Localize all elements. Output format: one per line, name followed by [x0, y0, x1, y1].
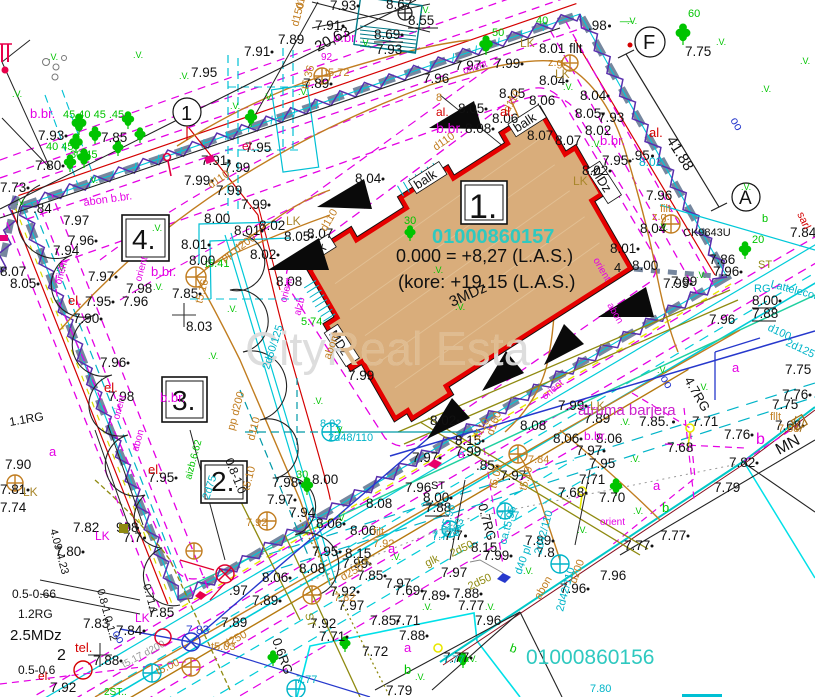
svg-text:7.77: 7.77 — [660, 528, 686, 543]
svg-text:orient: orient — [600, 517, 625, 528]
svg-text:7.75: 7.75 — [785, 362, 811, 377]
svg-text:a: a — [404, 640, 412, 655]
svg-text:8.02: 8.02 — [320, 418, 341, 430]
svg-text:8.55: 8.55 — [408, 13, 434, 28]
svg-text:.V.: .V. — [422, 602, 432, 612]
svg-text:8.04: 8.04 — [640, 221, 667, 236]
svg-text:CK9843U: CK9843U — [683, 227, 731, 239]
svg-text:7.75: 7.75 — [685, 44, 711, 59]
svg-text:b: b — [662, 500, 669, 515]
svg-text:1.2RG: 1.2RG — [18, 607, 53, 621]
svg-text:.V.: .V. — [485, 602, 495, 612]
svg-text:el.: el. — [68, 293, 82, 308]
svg-text:t5.03: t5.03 — [211, 641, 235, 653]
svg-text:8.08: 8.08 — [299, 561, 325, 576]
svg-text:.V.: .V. — [152, 223, 162, 233]
svg-text:7.95: 7.95 — [191, 65, 217, 80]
svg-text:F: F — [643, 32, 655, 54]
svg-text:7.99: 7.99 — [348, 368, 374, 383]
svg-text:8.01: 8.01 — [610, 241, 636, 256]
svg-text:a: a — [49, 444, 57, 459]
svg-text:40: 40 — [536, 15, 548, 27]
svg-text:8.06: 8.06 — [529, 93, 555, 108]
svg-text:al.: al. — [436, 105, 449, 119]
svg-text:7.89: 7.89 — [420, 588, 446, 603]
svg-text:tel.: tel. — [75, 640, 92, 655]
svg-text:7.82: 7.82 — [729, 455, 755, 470]
svg-text:LK: LK — [573, 174, 588, 188]
svg-text:7.94: 7.94 — [289, 505, 316, 520]
svg-text:7.82: 7.82 — [334, 592, 355, 604]
svg-text:a: a — [732, 360, 740, 375]
svg-text:7.79: 7.79 — [714, 480, 740, 495]
svg-text:b.br.: b.br. — [30, 106, 55, 121]
svg-text:7.79: 7.79 — [386, 683, 412, 697]
svg-text:.V.: .V. — [313, 396, 323, 406]
svg-text:7.84: 7.84 — [528, 454, 549, 466]
svg-text:.84: .84 — [33, 201, 52, 216]
svg-text:.V.: .V. — [179, 71, 189, 81]
svg-text:.V.: .V. — [633, 506, 643, 516]
svg-text:7.93: 7.93 — [376, 42, 402, 57]
svg-text:8.08: 8.08 — [465, 121, 491, 136]
svg-text:8.02: 8.02 — [250, 247, 276, 262]
svg-text:t5.72: t5.72 — [325, 67, 349, 79]
svg-text:45 40 45 .45: 45 40 45 .45 — [63, 109, 124, 121]
svg-text:7.96: 7.96 — [423, 71, 449, 86]
svg-text:7.90: 7.90 — [73, 311, 99, 326]
svg-text:2.5MDz: 2.5MDz — [10, 627, 62, 644]
svg-text:2d48/110: 2d48/110 — [328, 432, 373, 444]
svg-text:.V.: .V. — [741, 182, 751, 192]
svg-text:b.br.: b.br. — [160, 390, 185, 405]
svg-text:8.00: 8.00 — [204, 211, 230, 226]
svg-text:1: 1 — [181, 103, 192, 125]
svg-text:4: 4 — [614, 260, 621, 275]
svg-text:7.96: 7.96 — [600, 568, 626, 583]
svg-text:01000860157: 01000860157 — [432, 226, 554, 248]
svg-text:01000860156: 01000860156 — [526, 646, 654, 669]
svg-text:8.06: 8.06 — [262, 570, 288, 585]
svg-text:.V.: .V. — [16, 197, 26, 207]
svg-text:7.74: 7.74 — [0, 500, 27, 515]
svg-text:fllt: fllt — [770, 411, 781, 423]
svg-text:60: 60 — [688, 8, 700, 20]
svg-text:ST: ST — [431, 480, 445, 492]
svg-text:8.07: 8.07 — [555, 133, 581, 148]
svg-text:LK: LK — [95, 529, 110, 543]
svg-text:7.89: 7.89 — [278, 32, 304, 47]
svg-text:7.71: 7.71 — [319, 629, 345, 644]
svg-text:.V.: .V. — [227, 304, 237, 314]
svg-text:8.08: 8.08 — [520, 418, 546, 433]
svg-text:filt: filt — [373, 526, 384, 538]
svg-text:0.5-0.6: 0.5-0.6 — [18, 663, 56, 677]
svg-text:.V.: .V. — [716, 37, 726, 47]
svg-text:.V.: .V. — [455, 302, 465, 312]
svg-text:7.71: 7.71 — [692, 414, 718, 429]
svg-text:7.77: 7.77 — [624, 538, 650, 553]
svg-text:.V.: .V. — [360, 38, 370, 48]
svg-text:.V.: .V. — [133, 50, 143, 60]
svg-text:al.: al. — [500, 104, 514, 119]
svg-text:7.85: 7.85 — [101, 130, 127, 145]
svg-text:8.08: 8.08 — [366, 496, 392, 511]
svg-text:7.93: 7.93 — [598, 110, 624, 125]
svg-text:8.02: 8.02 — [639, 155, 663, 169]
svg-text:el.: el. — [242, 139, 255, 153]
svg-text:7.77: 7.77 — [296, 674, 317, 686]
svg-text:7.85: 7.85 — [370, 613, 396, 628]
svg-text:.V.: .V. — [230, 101, 240, 111]
svg-text:7.75: 7.75 — [772, 397, 798, 412]
svg-text:8.00: 8.00 — [312, 472, 338, 487]
svg-text:2ST..: 2ST.. — [104, 687, 127, 697]
svg-text:7.95: 7.95 — [85, 294, 111, 309]
svg-text:7.97: 7.97 — [63, 213, 89, 228]
svg-text:7.80: 7.80 — [590, 683, 611, 695]
svg-text:8.06: 8.06 — [316, 516, 342, 531]
svg-text:7.93: 7.93 — [330, 0, 356, 13]
svg-text:7.96: 7.96 — [646, 188, 672, 203]
svg-text:7.77: 7.77 — [498, 510, 519, 522]
svg-text:7.99: 7.99 — [494, 56, 520, 71]
svg-text:8.00: 8.00 — [189, 253, 215, 268]
svg-text:8.02: 8.02 — [430, 413, 456, 428]
svg-text:7.68: 7.68 — [558, 485, 584, 500]
svg-text:.V.: .V. — [627, 16, 637, 26]
svg-text:b.br.: b.br. — [436, 120, 463, 136]
svg-text:7.76: 7.76 — [724, 427, 750, 442]
svg-text:a: a — [388, 541, 396, 556]
svg-text:7.68: 7.68 — [667, 440, 693, 455]
svg-text:LK: LK — [520, 36, 535, 50]
svg-text:LK: LK — [590, 399, 605, 413]
svg-text:1.: 1. — [469, 188, 497, 226]
svg-text:7.83: 7.83 — [186, 623, 210, 637]
svg-text:.V.: .V. — [153, 282, 163, 292]
svg-text:7.96: 7.96 — [709, 312, 735, 327]
svg-text:7.99: 7.99 — [671, 274, 697, 289]
svg-text:20: 20 — [752, 234, 764, 246]
svg-text:2: 2 — [57, 647, 66, 664]
svg-text:7.91: 7.91 — [244, 44, 270, 59]
svg-text:30 45: 30 45 — [70, 149, 98, 161]
svg-text:.V.: .V. — [761, 84, 771, 94]
svg-text:.98: .98 — [588, 18, 607, 33]
svg-text:LK: LK — [357, 554, 372, 568]
svg-text:b: b — [404, 662, 411, 677]
svg-text:7.89: 7.89 — [252, 593, 278, 608]
svg-text:7.77: 7.77 — [443, 654, 464, 666]
svg-text:.97: .97 — [229, 583, 248, 598]
svg-text:7.98: 7.98 — [272, 475, 298, 490]
svg-text:7.95: 7.95 — [602, 153, 628, 168]
svg-text:el.: el. — [104, 380, 118, 395]
svg-text:8.04: 8.04 — [355, 171, 382, 186]
svg-text:8.01 fllt: 8.01 fllt — [539, 41, 583, 56]
svg-text:LK: LK — [23, 485, 38, 499]
svg-text:50: 50 — [492, 27, 504, 39]
svg-text:ST: ST — [758, 259, 772, 271]
svg-text:a: a — [653, 478, 661, 493]
svg-text:7.88: 7.88 — [399, 628, 425, 643]
svg-text:8.67: 8.67 — [386, 0, 412, 12]
svg-text:7.70: 7.70 — [599, 490, 625, 505]
svg-text:7.99: 7.99 — [241, 197, 267, 212]
svg-text:b.br.: b.br. — [151, 264, 176, 279]
svg-text:.V.: .V. — [12, 89, 22, 99]
svg-text:8.03: 8.03 — [186, 319, 212, 334]
svg-text:.V.: .V. — [696, 270, 706, 280]
svg-text:b: b — [762, 213, 768, 225]
svg-text:filt: filt — [660, 203, 671, 215]
svg-text:30: 30 — [404, 215, 416, 227]
svg-text:7.90: 7.90 — [5, 457, 31, 472]
svg-text:7.96: 7.96 — [122, 294, 148, 309]
svg-text:7.97: 7.97 — [88, 269, 114, 284]
svg-text:el.: el. — [148, 462, 162, 477]
svg-text:7.95: 7.95 — [589, 456, 615, 471]
svg-text:8: 8 — [436, 92, 442, 104]
svg-text:7.96: 7.96 — [100, 355, 126, 370]
svg-text:8.07: 8.07 — [0, 264, 26, 279]
svg-text:7.94: 7.94 — [53, 243, 80, 258]
svg-text:7.93: 7.93 — [38, 128, 64, 143]
svg-text:7.99: 7.99 — [483, 548, 509, 563]
svg-text:.V.: .V. — [263, 92, 273, 102]
svg-text:.V.: .V. — [657, 365, 667, 375]
svg-text:b.br.: b.br. — [584, 429, 607, 443]
svg-text:7.96: 7.96 — [713, 264, 739, 279]
svg-text:.V.: .V. — [415, 672, 425, 682]
svg-text:7.92: 7.92 — [50, 680, 76, 695]
svg-text:.V.: .V. — [630, 454, 640, 464]
svg-text:0.000 = +8,27 (L.A.S.): 0.000 = +8,27 (L.A.S.) — [396, 246, 573, 266]
svg-text:b: b — [756, 431, 765, 448]
svg-text:7.73: 7.73 — [0, 180, 26, 195]
svg-text:.V.: .V. — [208, 351, 218, 361]
svg-text:7.77: 7.77 — [432, 529, 453, 541]
svg-text:8.04: 8.04 — [580, 88, 607, 103]
svg-text:0.5-0.66: 0.5-0.66 — [12, 587, 56, 601]
svg-text:RG: RG — [754, 283, 771, 295]
svg-text:8.07: 8.07 — [527, 128, 553, 143]
svg-text:7.89: 7.89 — [221, 615, 247, 630]
svg-text:a: a — [458, 447, 465, 461]
svg-text:8.01: 8.01 — [181, 237, 207, 252]
svg-text:7.92: 7.92 — [246, 517, 267, 529]
svg-text:.V.: .V. — [577, 525, 587, 535]
svg-text:LK: LK — [286, 214, 301, 228]
svg-text:8.69: 8.69 — [374, 27, 400, 42]
svg-text:.V.: .V. — [433, 265, 443, 275]
svg-text:7.96: 7.96 — [475, 613, 501, 628]
svg-text:.V.: .V. — [88, 175, 98, 185]
svg-text:7.95: 7.95 — [312, 544, 338, 559]
svg-text:7.97: 7.97 — [441, 565, 467, 580]
svg-text:8.00: 8.00 — [632, 258, 658, 273]
svg-text:7.80: 7.80 — [35, 158, 61, 173]
svg-text:LK: LK — [555, 67, 570, 81]
svg-text:7.77: 7.77 — [458, 598, 484, 613]
svg-text:b.br.: b.br. — [600, 133, 625, 148]
svg-text:7.72: 7.72 — [362, 644, 388, 659]
svg-text:al.: al. — [649, 125, 663, 140]
svg-text:8.05: 8.05 — [458, 101, 484, 116]
svg-text:.V.: .V. — [800, 56, 810, 66]
svg-text:7.97: 7.97 — [385, 576, 411, 591]
